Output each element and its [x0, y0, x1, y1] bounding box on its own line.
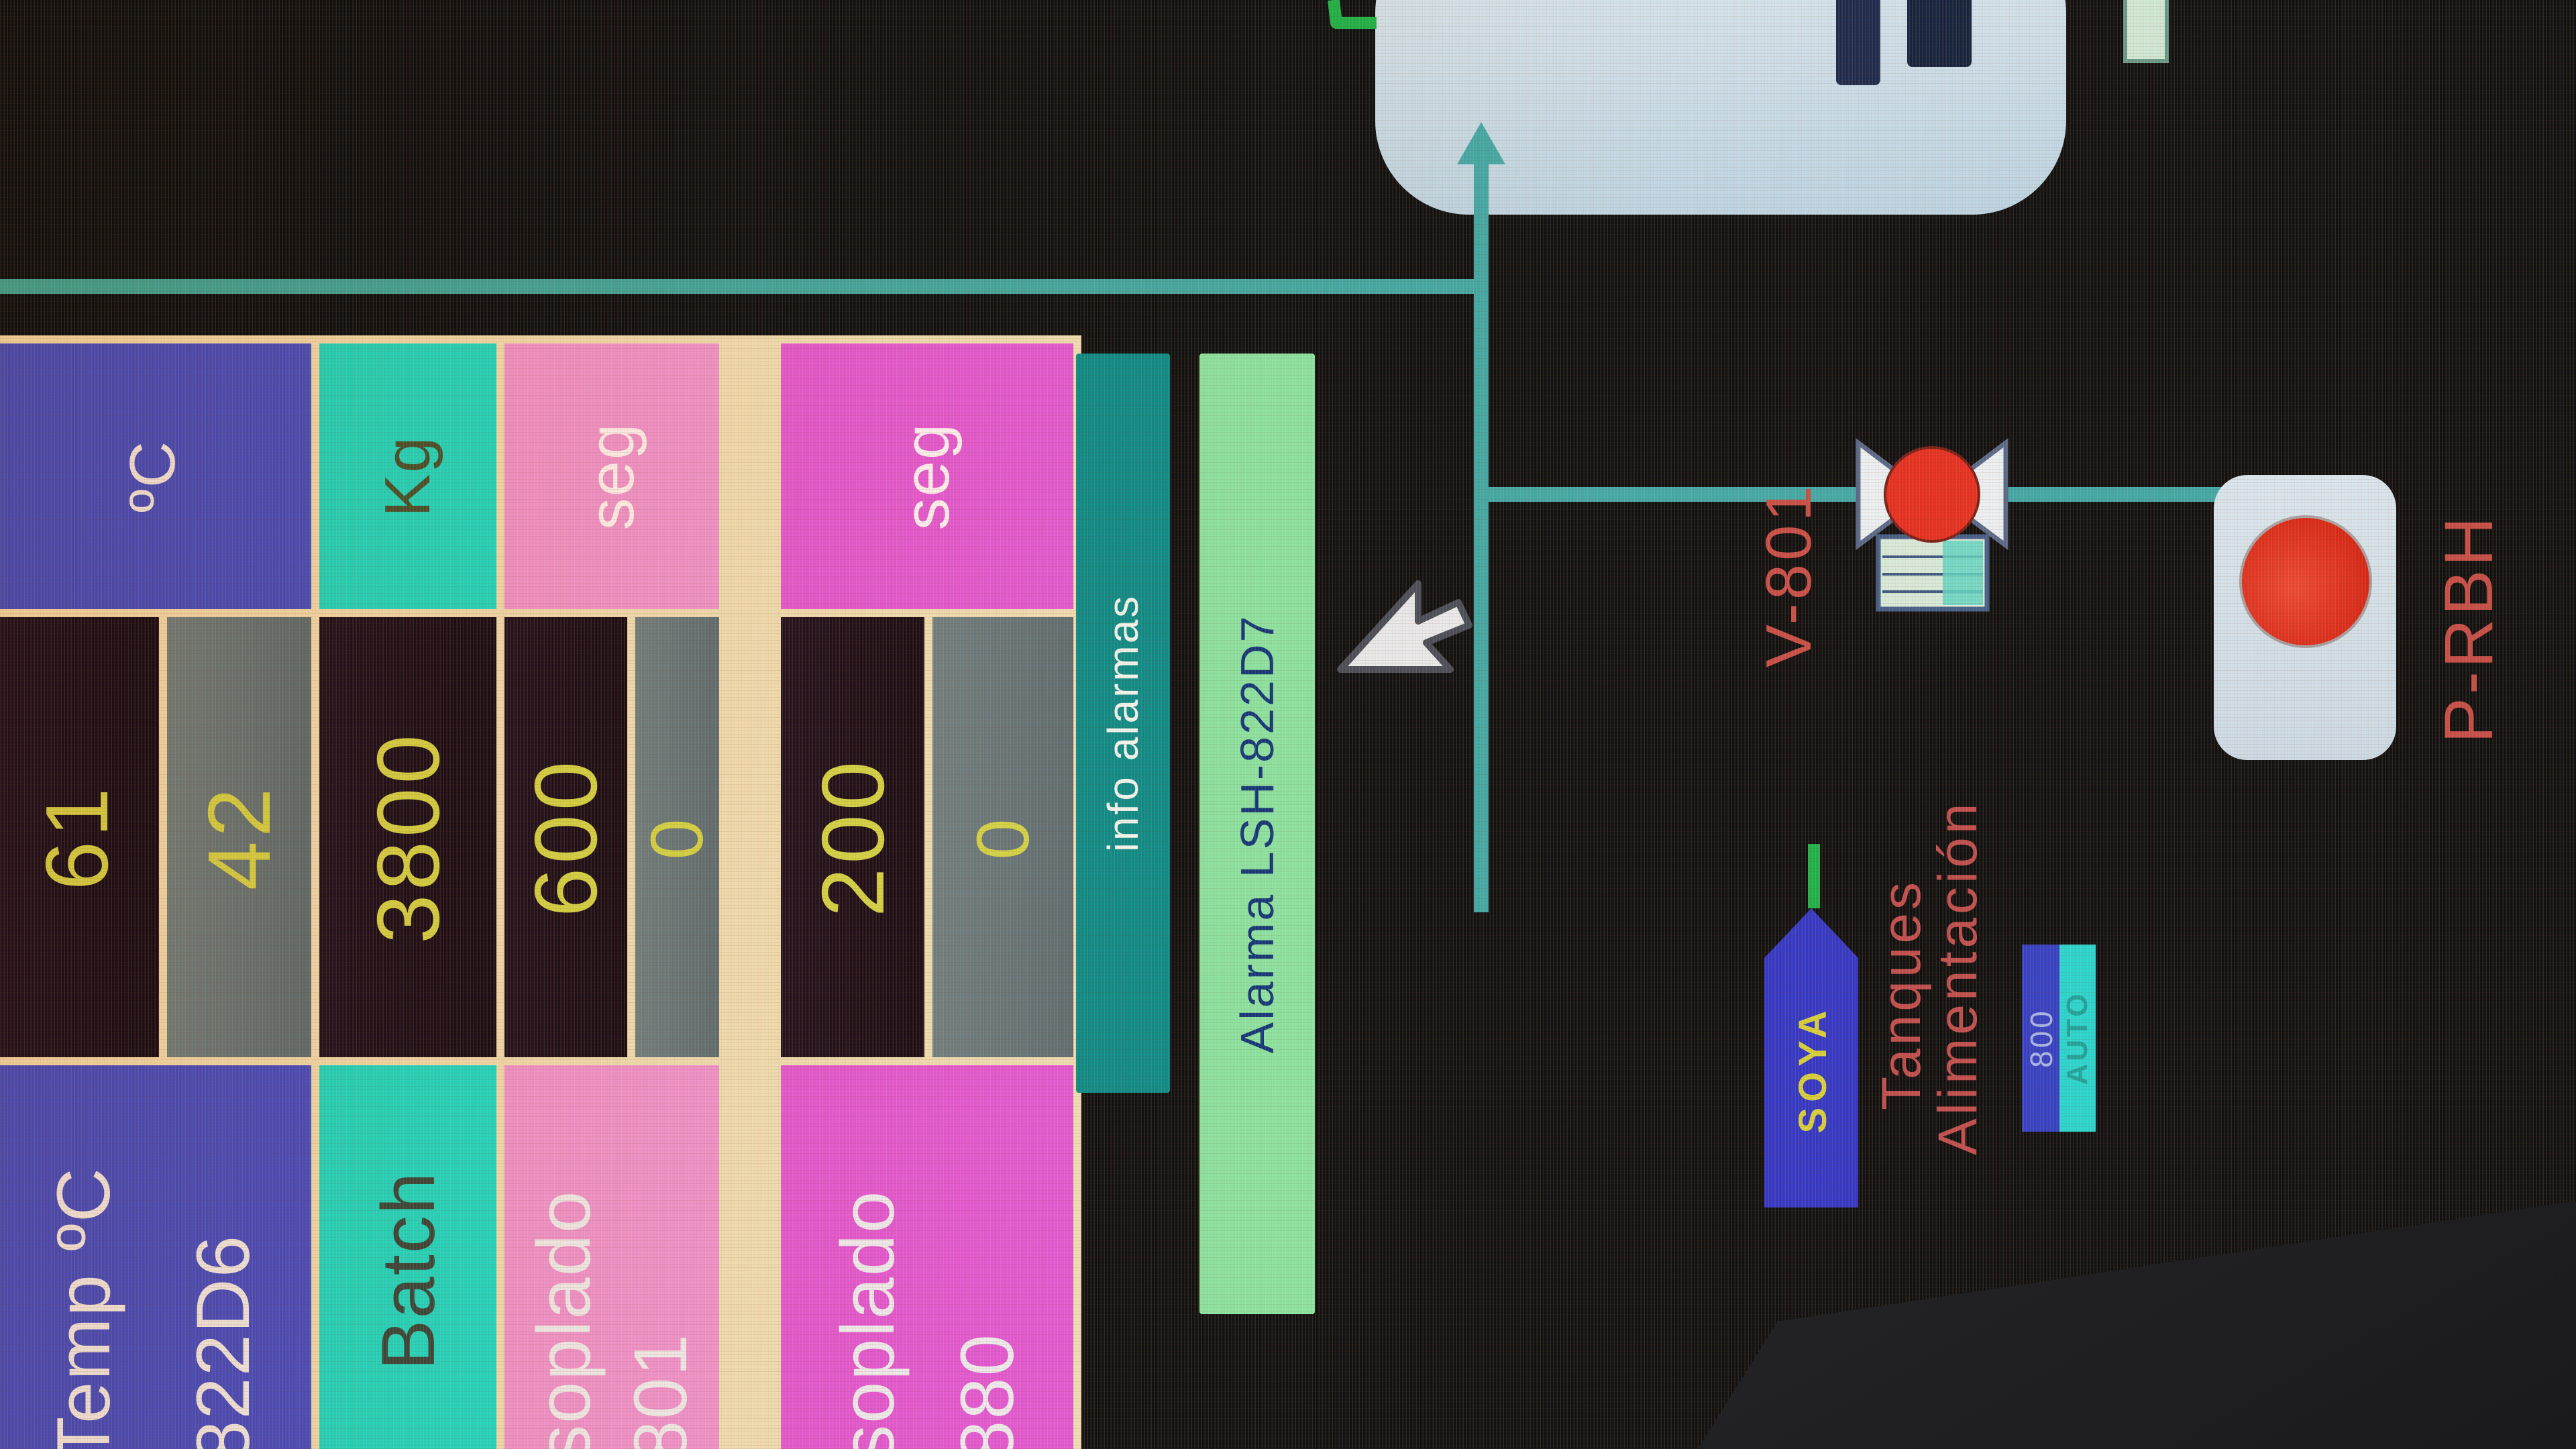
valve-icon[interactable]	[1858, 443, 2006, 609]
feed-title-line2: Alimentación	[1927, 800, 1990, 1155]
green-pipe-elbow	[1334, 0, 1377, 23]
unit-number-cell[interactable]: 800	[2022, 945, 2061, 1132]
pump-label: P-RBH	[2430, 514, 2508, 743]
mode-cell[interactable]: AUTO	[2059, 945, 2096, 1132]
screen-photo: Temp ºC 822D6 Batch soplado 801 soplado …	[0, 0, 2576, 1449]
cursor-arrow-icon	[1335, 517, 1496, 678]
svg-text:SOYA: SOYA	[1791, 1005, 1835, 1133]
mode-text: AUTO	[2061, 991, 2094, 1085]
piping-layer: SOYA	[0, 0, 2576, 1449]
flow-arrow-icon	[1457, 122, 1505, 164]
soya-tank-tag[interactable]: SOYA	[1764, 908, 1858, 1207]
pump-icon[interactable]	[2242, 518, 2369, 645]
valve-label: V-801	[1752, 482, 1826, 667]
hmi-screen: Temp ºC 822D6 Batch soplado 801 soplado …	[0, 0, 2576, 1449]
unit-number-text: 800	[2023, 1008, 2059, 1068]
feed-title-line1: Tanques	[1870, 879, 1933, 1110]
